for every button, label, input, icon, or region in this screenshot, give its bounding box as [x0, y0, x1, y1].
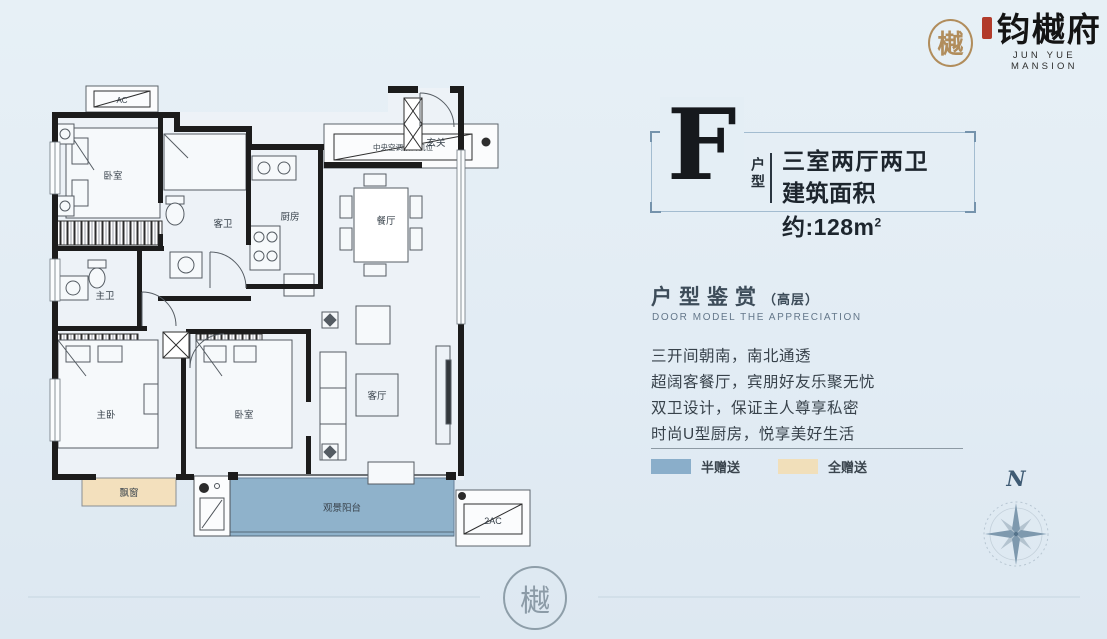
room-label-balcony: 观景阳台: [323, 502, 361, 514]
legend-swatch-half-gift: [651, 459, 691, 474]
unit-area-exponent: 2: [875, 215, 882, 229]
description-block: 三开间朝南，南北通透 超阔客餐厅，宾朋好友乐聚无忧 双卫设计，保证主人尊享私密 …: [651, 344, 875, 448]
legend-item-full-gift: 全赠送: [778, 457, 867, 476]
ac-label: AC: [116, 96, 127, 105]
two-ac-label: 2AC: [484, 516, 502, 526]
pipe-shaft: [194, 476, 230, 536]
section-subtitle-en: DOOR MODEL THE APPRECIATION: [652, 312, 862, 323]
room-label-guest-bath: 客卫: [213, 218, 233, 230]
floor-plan: AC 中央空调预留机位 2AC: [38, 84, 535, 569]
unit-area: 建筑面积约:128m2: [782, 174, 974, 242]
brand-text-block: 钧樾府 JUN YUE MANSION: [982, 13, 1107, 72]
room-label-bedroom-top: 卧室: [103, 170, 122, 182]
section-title-cn: 户型鉴赏: [651, 286, 763, 309]
room-label-kitchen: 厨房: [280, 211, 299, 223]
brand-seal-icon: 樾: [928, 19, 973, 67]
watermark-line-right: [598, 596, 1080, 598]
legend-item-half-gift: 半赠送: [651, 457, 740, 476]
brand-name-cn: 钧樾府: [997, 13, 1102, 47]
room-label-bedroom-second: 卧室: [234, 409, 253, 421]
red-stamp-icon: [982, 17, 992, 39]
brand-logo: 樾 钧樾府 JUN YUE MANSION: [928, 13, 1107, 72]
divider-line: [651, 448, 963, 449]
unit-area-value: 128m: [814, 214, 875, 240]
description-line: 三开间朝南，南北通透: [651, 344, 875, 370]
corner-ornament: [965, 131, 976, 142]
compass-rose-icon: [984, 502, 1048, 566]
central-ac-label: 中央空调预留机位: [373, 142, 433, 152]
unit-type-vertical-label: 户型: [748, 157, 768, 191]
section-title-note: （高层）: [763, 292, 819, 307]
unit-divider: [770, 153, 772, 203]
legend-label-half-gift: 半赠送: [701, 457, 740, 476]
unit-spec: 三室两厅两卫: [782, 142, 929, 176]
legend: 半赠送 全赠送: [651, 457, 893, 476]
watermark-line-left: [28, 596, 480, 598]
unit-letter: F: [660, 97, 744, 195]
unit-title-box: F 户型 三室两厅两卫 建筑面积约:128m2: [651, 132, 975, 212]
corner-ornament: [650, 202, 661, 213]
legend-swatch-full-gift: [778, 459, 818, 474]
compass: N: [966, 466, 1066, 578]
room-label-living: 客厅: [367, 390, 387, 402]
description-line: 超阔客餐厅，宾朋好友乐聚无忧: [651, 370, 875, 396]
room-label-entry: 玄关: [426, 137, 446, 149]
brand-seal-char: 樾: [937, 24, 963, 61]
description-line: 双卫设计，保证主人尊享私密: [651, 396, 875, 422]
watermark-seal-icon: 樾: [503, 566, 567, 630]
room-label-master-bedroom: 主卧: [96, 409, 116, 421]
brand-name-row: 钧樾府: [982, 13, 1107, 47]
room-label-master-bath: 主卫: [95, 290, 115, 302]
description-line: 时尚U型厨房，悦享美好生活: [651, 422, 875, 448]
watermark-seal-char: 樾: [520, 576, 550, 620]
section-title: 户型鉴赏（高层）: [651, 281, 819, 311]
poster-page: 樾 钧樾府 JUN YUE MANSION: [0, 0, 1107, 639]
room-label-dining: 餐厅: [376, 215, 396, 227]
legend-label-full-gift: 全赠送: [828, 457, 867, 476]
brand-name-en: JUN YUE MANSION: [982, 50, 1107, 72]
room-label-bay-window: 飘窗: [119, 487, 138, 499]
compass-north-label: N: [1005, 466, 1026, 491]
